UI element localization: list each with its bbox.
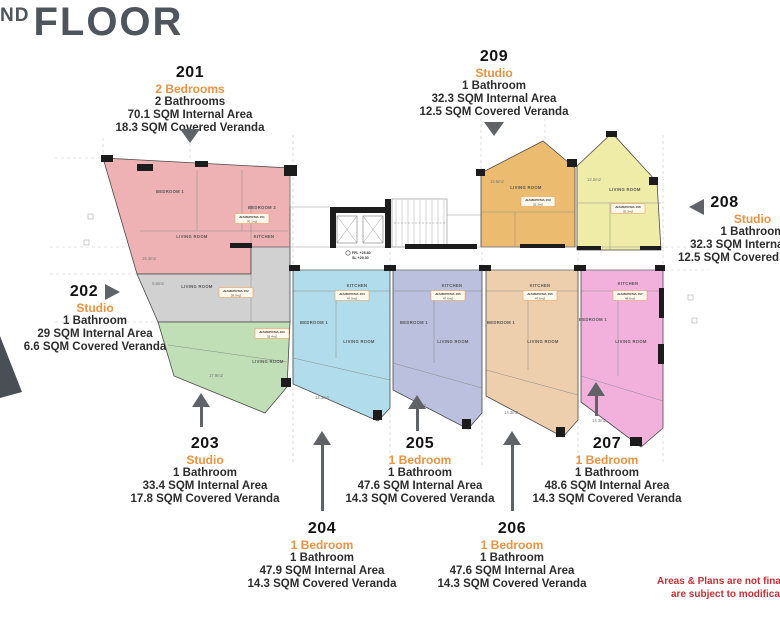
unit-207-number: 207	[517, 435, 697, 452]
apartment-tag-207: ΔΙΑΜΕΡΙΣΜΑ 207 48.6m2	[613, 291, 647, 301]
area-label: 14.3m2	[315, 395, 330, 400]
unit-203-bathrooms: 1 Bathroom	[115, 467, 295, 480]
svg-text:29.0m2: 29.0m2	[231, 294, 242, 298]
arrow-203-icon	[192, 393, 210, 407]
room-label: BEDROOM 1	[487, 320, 515, 325]
unit-202-callout: 202 Studio 1 Bathroom 29 SQM Internal Ar…	[5, 283, 185, 354]
arrow-205	[408, 395, 426, 431]
unit-201-callout: 201 2 Bedrooms 2 Bathrooms 70.1 SQM Inte…	[90, 64, 290, 135]
unit-203-callout: 203 Studio 1 Bathroom 33.4 SQM Internal …	[115, 435, 295, 506]
room-label: LIVING ROOM	[615, 339, 647, 344]
svg-text:ΔΙΑΜΕΡΙΣΜΑ 203: ΔΙΑΜΕΡΙΣΜΑ 203	[259, 330, 285, 334]
unit-208-veranda: 12.5 SQM Covered Veranda	[640, 252, 780, 265]
unit-201-number: 201	[90, 64, 290, 81]
room-label: KITCHEN	[618, 281, 639, 286]
area-label: 12.5m2	[587, 177, 602, 182]
room-label: KITCHEN	[347, 283, 368, 288]
room-label: LIVING ROOM	[176, 234, 208, 239]
unit-207-veranda: 14.3 SQM Covered Veranda	[517, 493, 697, 506]
svg-text:ΔΙΑΜΕΡΙΣΜΑ 201: ΔΙΑΜΕΡΙΣΜΑ 201	[239, 215, 265, 219]
unit-206-type: 1 Bedroom	[422, 539, 602, 552]
svg-text:47.9m2: 47.9m2	[347, 297, 358, 301]
unit-207-bathrooms: 1 Bathroom	[517, 467, 697, 480]
unit-203-veranda: 17.8 SQM Covered Veranda	[115, 493, 295, 506]
disclaimer: Areas & Plans are not final are subject …	[657, 575, 780, 601]
apartment-tag-202: ΔΙΑΜΕΡΙΣΜΑ 202 29.0m2	[219, 288, 253, 298]
area-label: 12.5m2	[490, 179, 505, 184]
room-label: KITCHEN	[254, 234, 275, 239]
unit-202-number: 202	[70, 283, 98, 300]
room-label: BEDROOM 2	[248, 205, 276, 210]
unit-203-type: Studio	[115, 454, 295, 467]
svg-text:32.3m2: 32.3m2	[623, 210, 634, 214]
room-label: BEDROOM 1	[156, 189, 184, 194]
room-label: KITCHEN	[530, 283, 551, 288]
arrow-204	[313, 431, 331, 511]
unit-209-bathrooms: 1 Bathroom	[394, 80, 594, 93]
apartment-tag-206: ΔΙΑΜΕΡΙΣΜΑ 206 47.6m2	[523, 291, 557, 301]
svg-text:ΔΙΑΜΕΡΙΣΜΑ 202: ΔΙΑΜΕΡΙΣΜΑ 202	[223, 289, 249, 293]
unit-205-bathrooms: 1 Bathroom	[330, 467, 510, 480]
unit-204-type: 1 Bedroom	[232, 539, 412, 552]
room-label: BEDROOM 1	[400, 320, 428, 325]
arrow-203	[192, 393, 210, 427]
room-label: LIVING ROOM	[527, 339, 559, 344]
unit-202-veranda: 6.6 SQM Covered Veranda	[5, 341, 185, 354]
unit-201-internal: 70.1 SQM Internal Area	[90, 109, 290, 122]
apartment-tag-204: ΔΙΑΜΕΡΙΣΜΑ 204 47.9m2	[335, 291, 369, 301]
arrow-206-icon	[503, 431, 521, 445]
unit-209-veranda: 12.5 SQM Covered Veranda	[394, 106, 594, 119]
unit-209-callout: 209 Studio 1 Bathroom 32.3 SQM Internal …	[394, 48, 594, 119]
area-label: 19.3m2	[142, 256, 157, 261]
arrow-202-icon	[105, 284, 120, 300]
unit-209-region	[481, 141, 575, 247]
svg-text:70.1m2: 70.1m2	[247, 220, 258, 224]
area-label: 14.3m2	[592, 418, 607, 423]
arrow-208-icon	[689, 199, 704, 215]
svg-text:ΔΙΑΜΕΡΙΣΜΑ 209: ΔΙΑΜΕΡΙΣΜΑ 209	[525, 198, 551, 202]
unit-204-callout: 204 1 Bedroom 1 Bathroom 47.9 SQM Intern…	[232, 520, 412, 591]
unit-204-internal: 47.9 SQM Internal Area	[232, 565, 412, 578]
unit-207-type: 1 Bedroom	[517, 454, 697, 467]
room-label: LIVING ROOM	[510, 185, 542, 190]
room-label: LIVING ROOM	[609, 187, 641, 192]
unit-209-internal: 32.3 SQM Internal Area	[394, 93, 594, 106]
unit-206-bathrooms: 1 Bathroom	[422, 552, 602, 565]
arrow-205-icon	[408, 395, 426, 409]
unit-202-internal: 29 SQM Internal Area	[5, 328, 185, 341]
arrow-201-icon	[180, 129, 200, 143]
unit-208-bathrooms: 1 Bathroom	[640, 226, 780, 239]
room-label: BEDROOM 1	[300, 320, 328, 325]
level-marker: FFL +25.80 SL +29.30	[346, 251, 371, 260]
arrow-207	[587, 382, 605, 416]
svg-text:33.4m2: 33.4m2	[267, 335, 278, 339]
disclaimer-line2: are subject to modificatio	[657, 588, 780, 601]
floor-plan-page: ND FLOOR	[0, 0, 780, 627]
unit-208-internal: 32.3 SQM Internal Area	[640, 239, 780, 252]
room-label: LIVING ROOM	[437, 339, 469, 344]
unit-205-type: 1 Bedroom	[330, 454, 510, 467]
area-label: 14.3m2	[504, 410, 519, 415]
unit-204-veranda: 14.3 SQM Covered Veranda	[232, 578, 412, 591]
apartment-tag-201: ΔΙΑΜΕΡΙΣΜΑ 201 70.1m2	[235, 214, 269, 224]
svg-text:ΔΙΑΜΕΡΙΣΜΑ 208: ΔΙΑΜΕΡΙΣΜΑ 208	[615, 205, 641, 209]
unit-205-callout: 205 1 Bedroom 1 Bathroom 47.6 SQM Intern…	[330, 435, 510, 506]
unit-206-callout: 206 1 Bedroom 1 Bathroom 47.6 SQM Intern…	[422, 520, 602, 591]
svg-text:ΔΙΑΜΕΡΙΣΜΑ 207: ΔΙΑΜΕΡΙΣΜΑ 207	[617, 292, 643, 296]
arrow-206	[503, 431, 521, 511]
svg-text:32.3m2: 32.3m2	[533, 203, 544, 207]
elevator-core	[337, 216, 383, 243]
unit-206-veranda: 14.3 SQM Covered Veranda	[422, 578, 602, 591]
unit-208-type: Studio	[640, 213, 780, 226]
disclaimer-line1: Areas & Plans are not final	[657, 575, 780, 588]
room-label: LIVING ROOM	[252, 359, 284, 364]
svg-text:ΔΙΑΜΕΡΙΣΜΑ 206: ΔΙΑΜΕΡΙΣΜΑ 206	[527, 292, 553, 296]
unit-205-internal: 47.6 SQM Internal Area	[330, 480, 510, 493]
unit-203-internal: 33.4 SQM Internal Area	[115, 480, 295, 493]
unit-204-bathrooms: 1 Bathroom	[232, 552, 412, 565]
arrow-209-icon	[484, 122, 504, 136]
unit-207-callout: 207 1 Bedroom 1 Bathroom 48.6 SQM Intern…	[517, 435, 697, 506]
unit-204-number: 204	[232, 520, 412, 537]
apartment-tag-209: ΔΙΑΜΕΡΙΣΜΑ 209 32.3m2	[521, 197, 555, 207]
unit-206-internal: 47.6 SQM Internal Area	[422, 565, 602, 578]
unit-208-callout: 208 Studio 1 Bathroom 32.3 SQM Internal …	[640, 194, 780, 265]
svg-text:47.6m2: 47.6m2	[535, 297, 546, 301]
unit-206-number: 206	[422, 520, 602, 537]
unit-202-type: Studio	[5, 302, 185, 315]
unit-207-internal: 48.6 SQM Internal Area	[517, 480, 697, 493]
svg-text:ΔΙΑΜΕΡΙΣΜΑ 204: ΔΙΑΜΕΡΙΣΜΑ 204	[339, 292, 365, 296]
arrow-207-icon	[587, 382, 605, 396]
area-label: 17.9m2	[209, 373, 224, 378]
unit-202-bathrooms: 1 Bathroom	[5, 315, 185, 328]
room-label: BEDROOM 1	[579, 317, 607, 322]
room-label: LIVING ROOM	[343, 339, 375, 344]
unit-201-type: 2 Bedrooms	[90, 83, 290, 96]
unit-208-number: 208	[640, 194, 780, 211]
room-label: LIVING ROOM	[181, 284, 213, 289]
svg-text:47.6m2: 47.6m2	[443, 297, 454, 301]
unit-209-number: 209	[394, 48, 594, 65]
unit-201-bathrooms: 2 Bathrooms	[90, 96, 290, 109]
apartment-tag-205: ΔΙΑΜΕΡΙΣΜΑ 205 47.6m2	[431, 291, 465, 301]
stairs	[392, 199, 447, 247]
svg-text:ΔΙΑΜΕΡΙΣΜΑ 205: ΔΙΑΜΕΡΙΣΜΑ 205	[435, 292, 461, 296]
apartment-tag-203: ΔΙΑΜΕΡΙΣΜΑ 203 33.4m2	[255, 329, 289, 339]
room-label: KITCHEN	[442, 283, 463, 288]
unit-209-type: Studio	[394, 67, 594, 80]
unit-regions	[103, 133, 663, 447]
level-sl: SL +29.30	[352, 256, 369, 260]
unit-203-number: 203	[115, 435, 295, 452]
arrow-204-icon	[313, 431, 331, 445]
svg-text:48.6m2: 48.6m2	[625, 297, 636, 301]
unit-205-veranda: 14.3 SQM Covered Veranda	[330, 493, 510, 506]
unit-205-number: 205	[330, 435, 510, 452]
level-ffl: FFL +25.80	[352, 251, 371, 255]
